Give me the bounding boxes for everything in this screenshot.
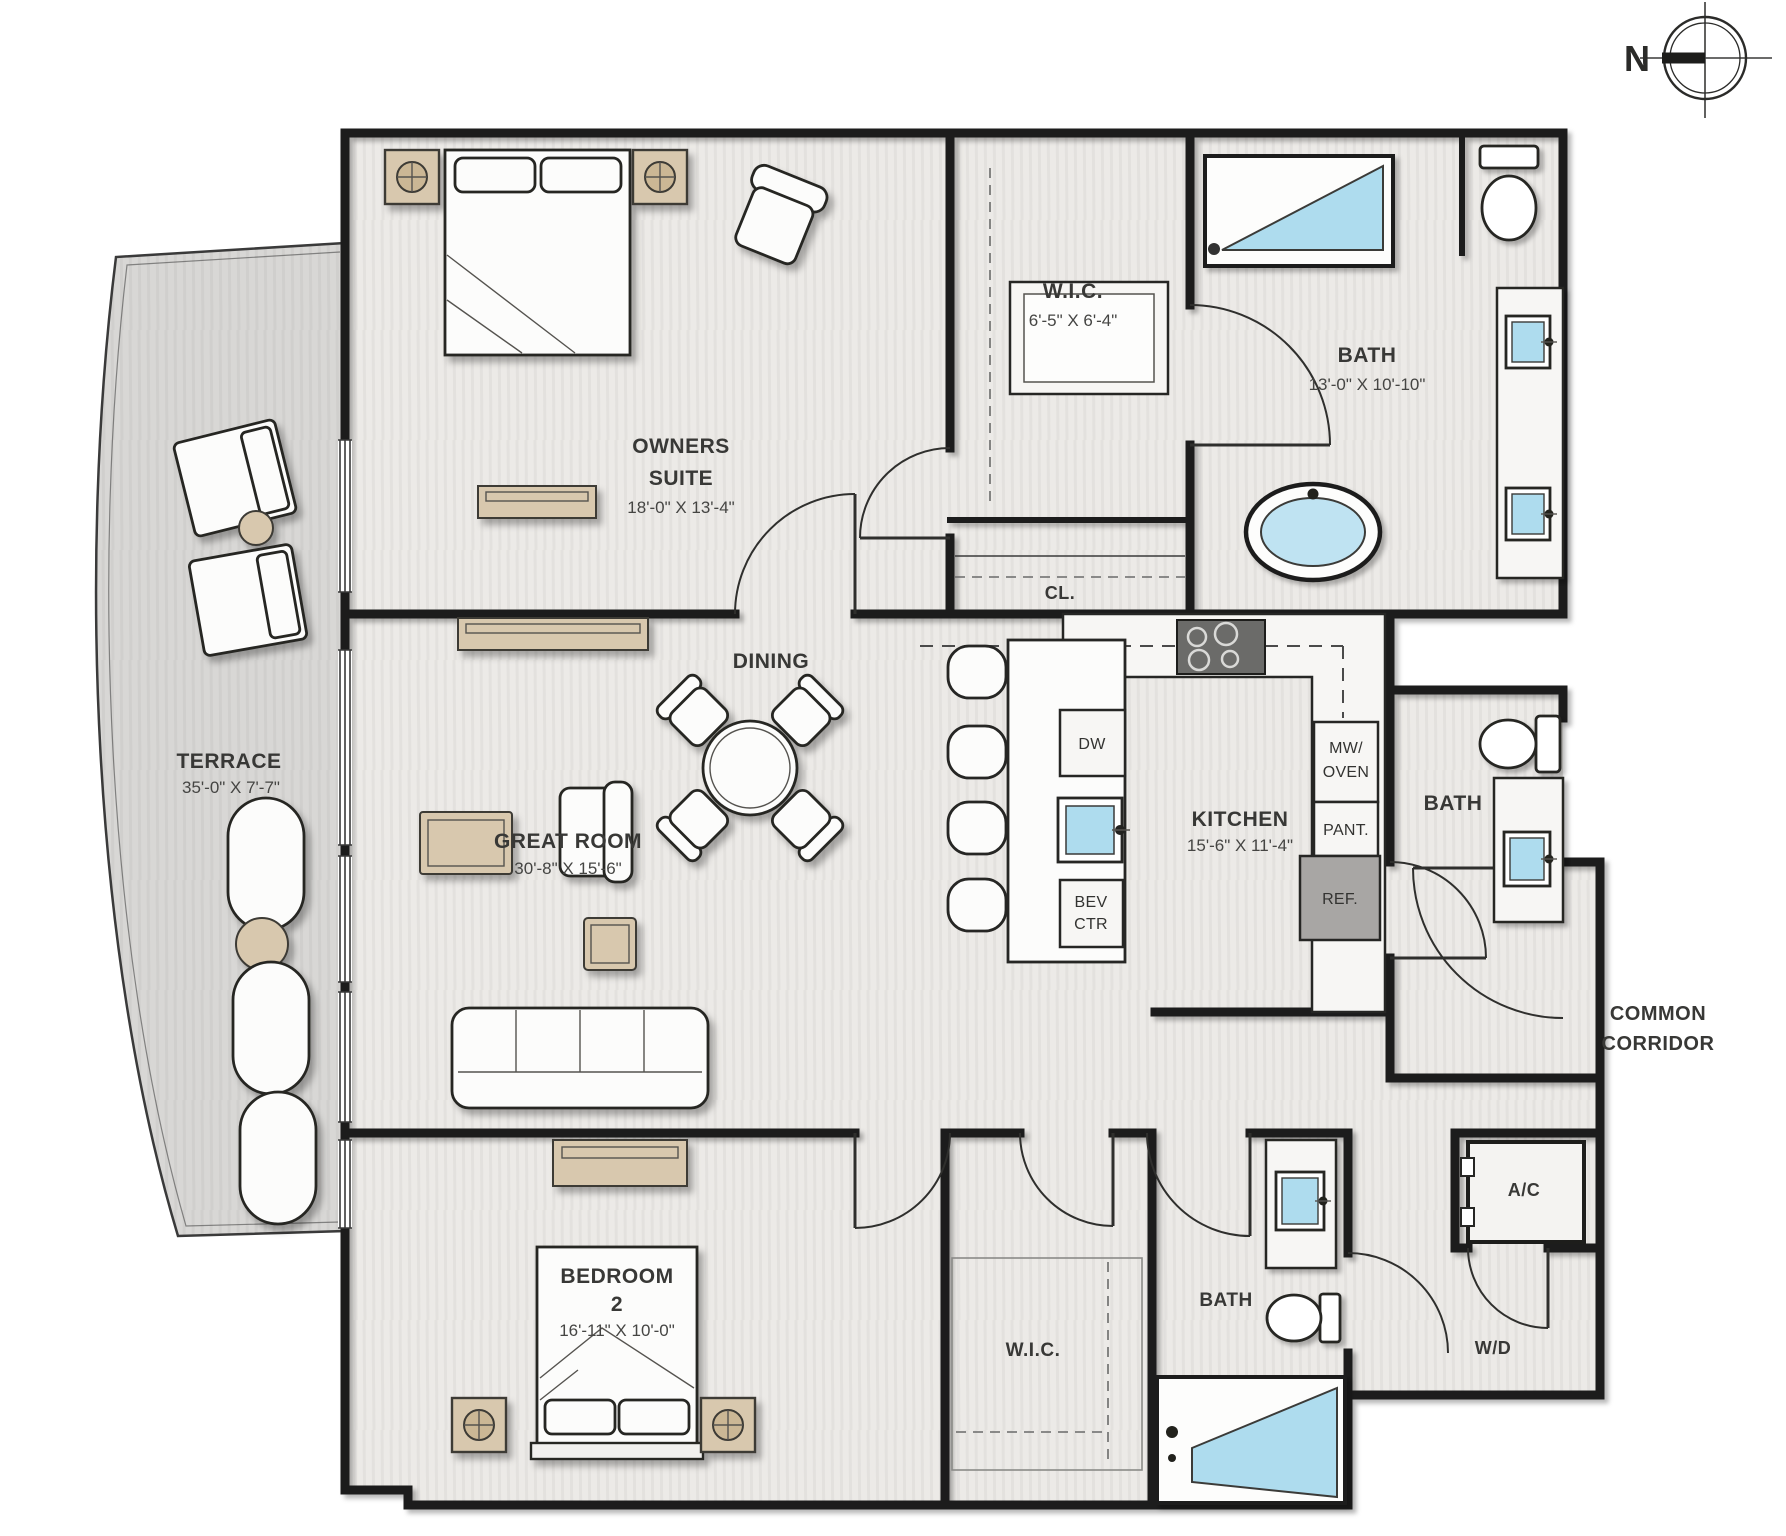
bar-stool [948, 802, 1006, 854]
nightstand-lamp [701, 1398, 755, 1452]
dishwasher: DW [1060, 710, 1125, 776]
toilet [1480, 716, 1560, 772]
kitchen-dims: 15'-6" X 11'-4" [1187, 836, 1293, 855]
mw-label-2: OVEN [1323, 764, 1370, 781]
powder-bath-label: BATH [1424, 792, 1483, 815]
vanity-double [1497, 288, 1563, 578]
common-corridor-label-1: COMMON [1610, 1003, 1706, 1025]
terrace-texture [96, 243, 345, 1236]
window [338, 650, 352, 845]
lounge-chair [188, 544, 307, 657]
shower [1205, 156, 1393, 266]
refrigerator: REF. [1300, 856, 1380, 940]
outdoor-lounger [228, 798, 304, 930]
window [338, 856, 352, 982]
pantry: PANT. [1314, 802, 1378, 856]
ref-label: REF. [1322, 891, 1358, 908]
owners-bath-label: BATH [1338, 344, 1397, 367]
shower-head [1208, 243, 1220, 255]
great-room-label: GREAT ROOM [494, 830, 642, 853]
bedroom-bath-label: BATH [1199, 1290, 1252, 1311]
common-corridor-label-2: CORRIDOR [1602, 1033, 1715, 1055]
compass-cross [1640, 2, 1772, 118]
owners-suite-label-1: OWNERS [632, 435, 730, 458]
owners-wic-label: W.I.C. [1043, 280, 1103, 303]
side-table [584, 918, 636, 970]
bar-stool [948, 726, 1006, 778]
cooktop [1177, 620, 1265, 674]
beverage-center: BEV CTR [1060, 880, 1123, 947]
great-room-dims: 30'-8" X 15'-6" [514, 859, 621, 878]
outdoor-lounger [240, 1092, 316, 1224]
bedroom-2-dims: 16'-11" X 10'-0" [559, 1321, 675, 1340]
kitchen-label: KITCHEN [1192, 808, 1289, 831]
dresser [478, 486, 596, 518]
compass: N [1624, 2, 1772, 118]
floor-plan-drawing: DW BEV CTR MW/ OVEN PANT. REF. [0, 0, 1786, 1536]
dishwasher-label: DW [1078, 736, 1106, 753]
bar-stool [948, 646, 1006, 698]
laundry-label: W/D [1475, 1338, 1512, 1358]
nightstand-lamp [633, 150, 687, 204]
owners-suite-dims: 18'-0" X 13'-4" [627, 498, 734, 517]
sofa [452, 1008, 708, 1108]
windows [338, 440, 352, 1228]
bed [445, 150, 630, 355]
vanity [1266, 1140, 1336, 1268]
compass-north-label: N [1624, 38, 1650, 79]
bedroom-2-label-1: BEDROOM [560, 1265, 673, 1288]
window [338, 1140, 352, 1228]
bev-label-1: BEV [1075, 894, 1108, 911]
mw-label-1: MW/ [1329, 740, 1363, 757]
freestanding-tub [1246, 484, 1380, 580]
media-console [458, 618, 648, 650]
island-sink [1058, 798, 1130, 862]
outdoor-lounger [233, 962, 309, 1094]
terrace-area [96, 243, 345, 1236]
terrace-label: TERRACE [176, 750, 281, 773]
bedroom-wic-label: W.I.C. [1006, 1340, 1061, 1361]
dining-label: DINING [733, 650, 810, 673]
terrace-dims: 35'-0" X 7'-7" [182, 778, 280, 797]
pantry-label: PANT. [1323, 822, 1369, 839]
tub-faucet [1166, 1426, 1178, 1438]
toilet [1480, 146, 1538, 240]
sink [1510, 838, 1544, 880]
bathtub [1157, 1377, 1345, 1503]
compass-north-pointer [1662, 53, 1705, 64]
sink [1512, 494, 1544, 534]
owners-suite-label-2: SUITE [649, 467, 713, 490]
window [338, 440, 352, 592]
bedroom-2-label-2: 2 [611, 1293, 623, 1316]
toilet [1267, 1294, 1340, 1342]
microwave-oven: MW/ OVEN [1314, 722, 1378, 802]
window [338, 992, 352, 1122]
media-console [553, 1140, 687, 1186]
small-table [239, 511, 273, 545]
nightstand-lamp [385, 150, 439, 204]
tub-faucet [1308, 489, 1319, 500]
ac-label: A/C [1508, 1180, 1541, 1200]
wic-island-top [1024, 294, 1154, 382]
sink [1282, 1178, 1318, 1224]
dining-table [703, 721, 797, 815]
nightstand-lamp [452, 1398, 506, 1452]
bar-stool [948, 879, 1006, 931]
bev-label-2: CTR [1074, 916, 1108, 933]
sink [1512, 322, 1544, 362]
vanity [1494, 778, 1563, 922]
owners-bath-dims: 13'-0" X 10'-10" [1309, 375, 1426, 394]
closet-label: CL. [1045, 583, 1076, 603]
floor-plan-page: DW BEV CTR MW/ OVEN PANT. REF. [0, 0, 1786, 1536]
owners-wic-dims: 6'-5" X 6'-4" [1029, 311, 1118, 330]
